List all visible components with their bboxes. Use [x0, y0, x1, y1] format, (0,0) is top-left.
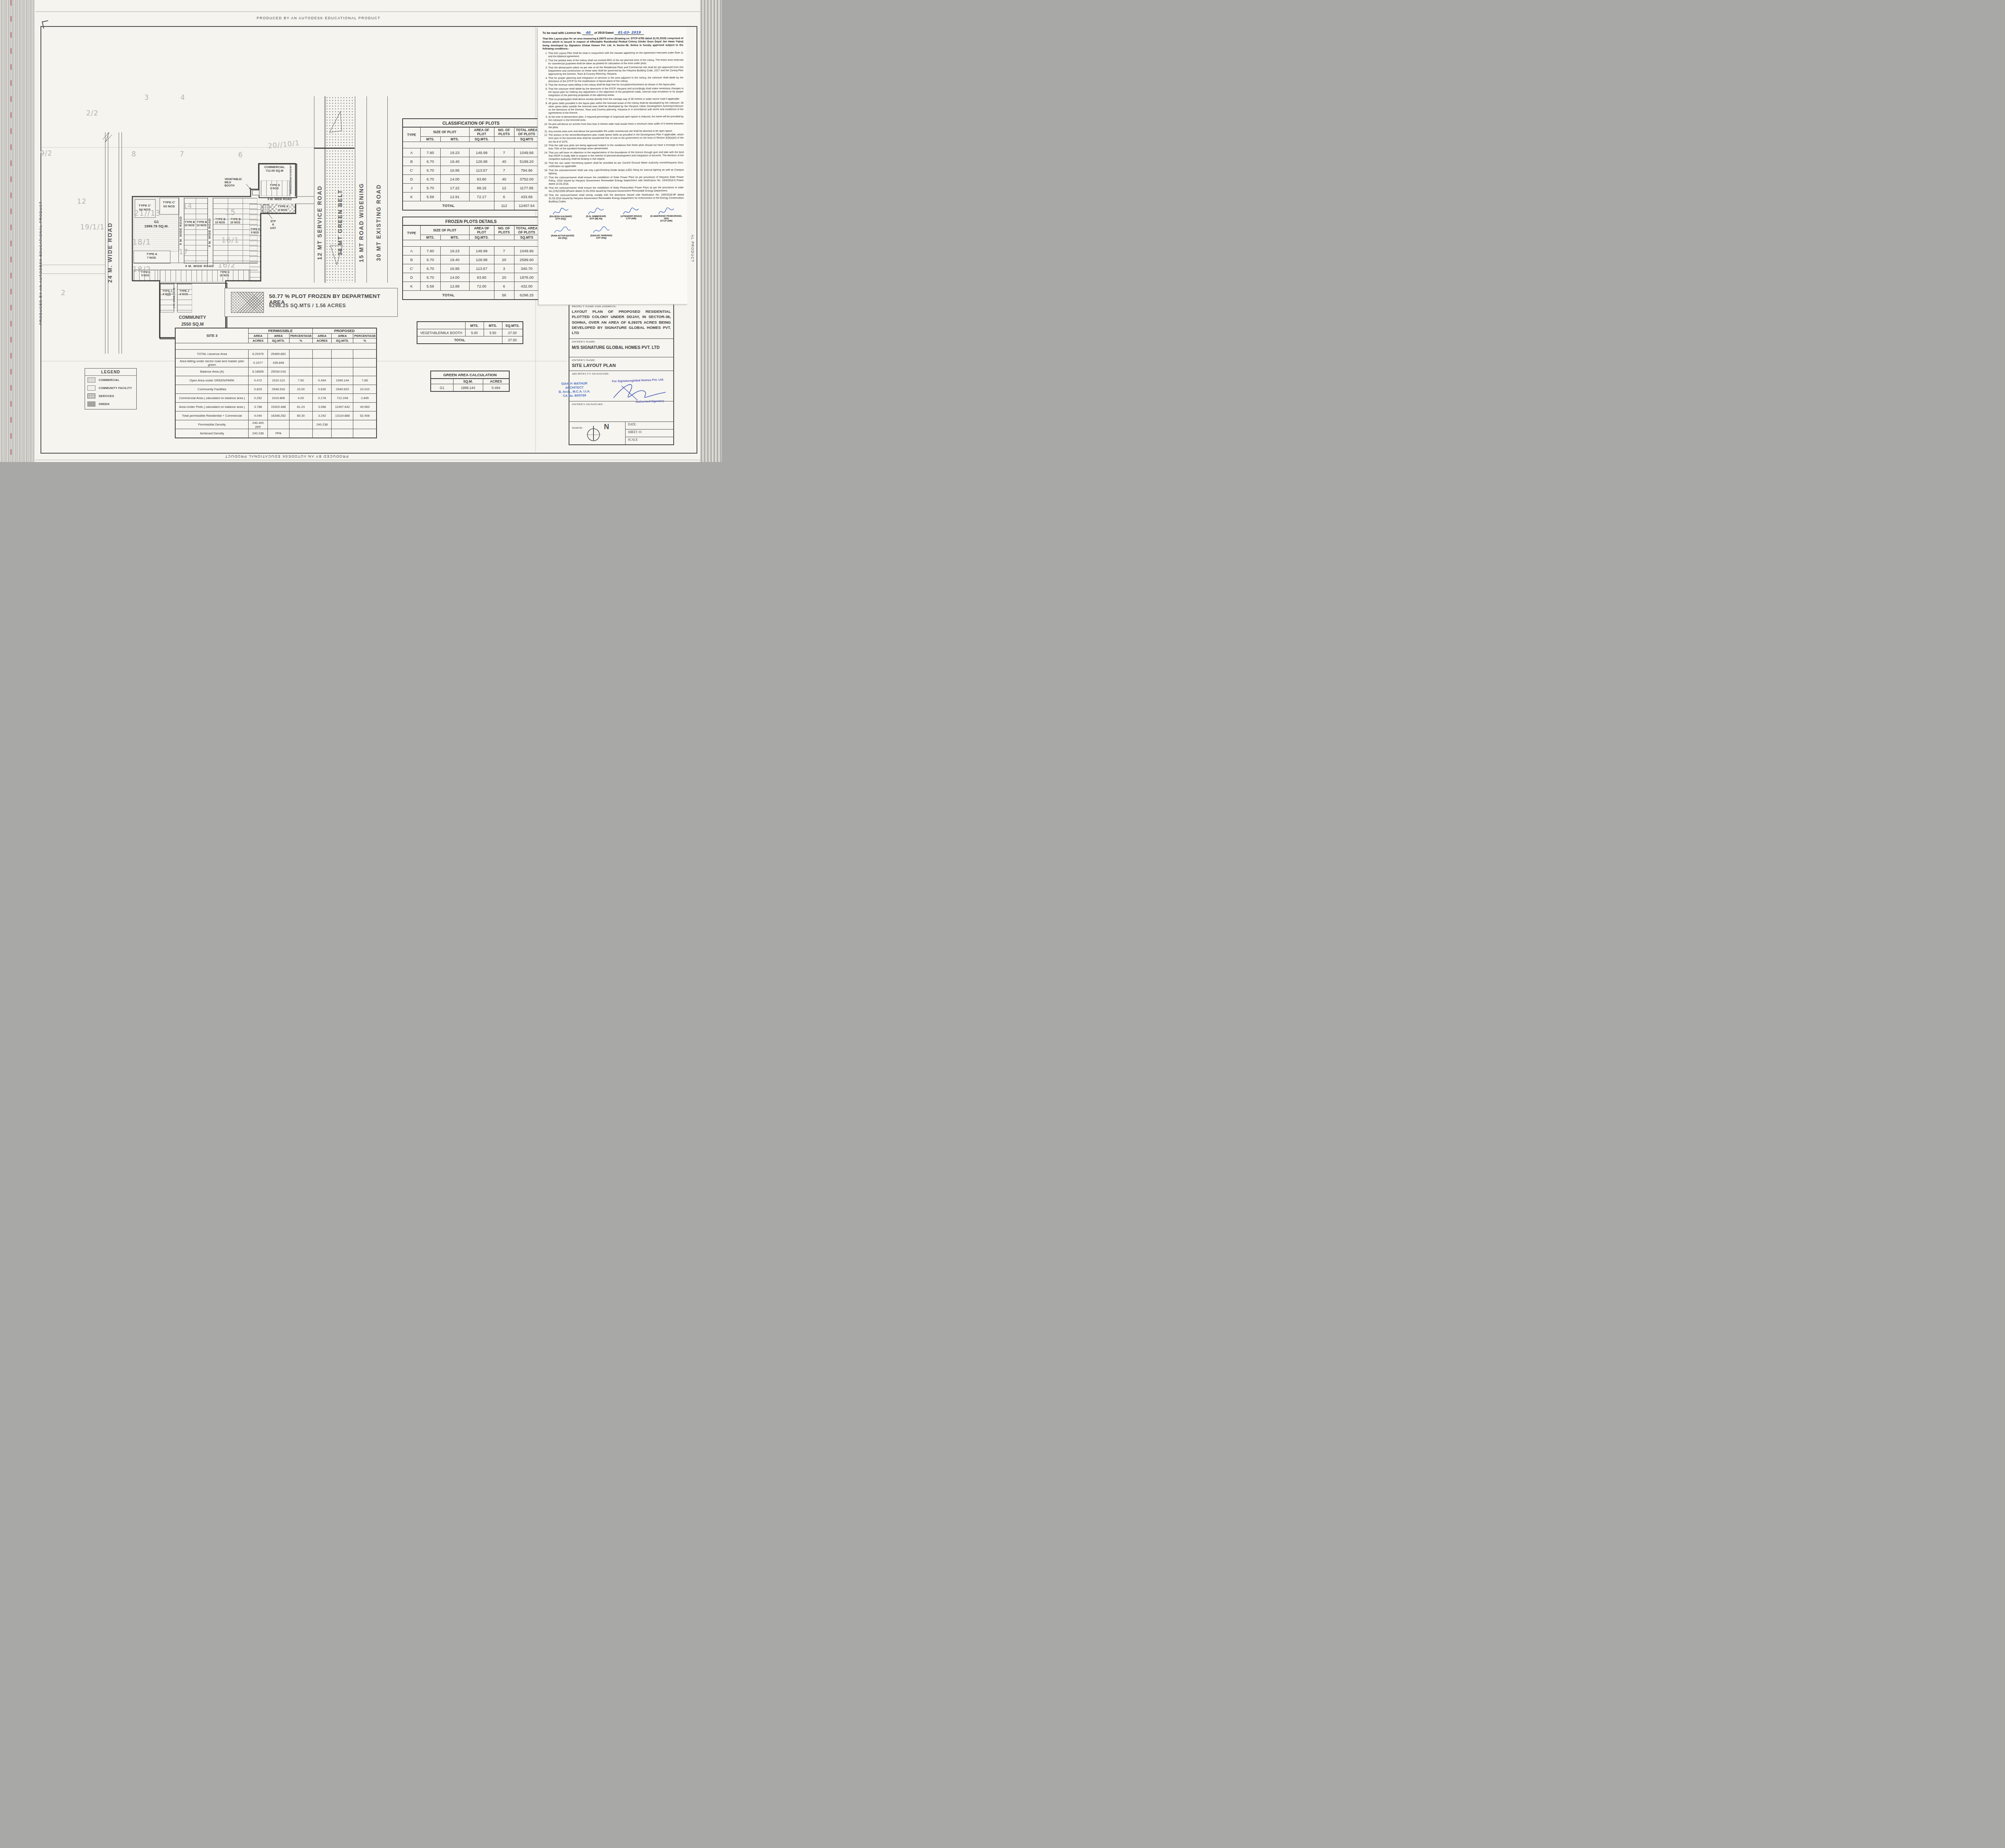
cell-area: 129.98: [469, 255, 494, 264]
frozen-plots-details-table: FROZEN PLOTS DETAILS TYPE SIZE OF PLOT A…: [402, 217, 540, 300]
cell-nos: 20: [494, 255, 514, 264]
legend-swatch: [87, 401, 95, 407]
cell-type: C': [403, 264, 420, 273]
cell-label: G1: [431, 384, 453, 392]
cell-width: 5.00: [465, 329, 484, 336]
cell-length: 12.91: [440, 192, 469, 201]
cell-area: 93.80: [469, 175, 494, 184]
table-row: K 5.59 12.91 72.17 6 433.68: [403, 192, 539, 201]
cell-total-area: 1177.85: [514, 184, 539, 192]
signatory-title: CTP (HR): [614, 217, 649, 220]
cell-acres: 0.494: [483, 384, 509, 392]
licence-condition: That the odd size plots are being approv…: [549, 144, 684, 151]
signature-scribble: [551, 207, 570, 216]
table-title: GREEN AREA CALCULATION: [431, 371, 509, 379]
table-row: A 7.80 19.23 149.99 7 1049.96: [403, 247, 539, 255]
cell-proposed-pct: 49.563: [353, 403, 377, 411]
cell-permissible-sqmts: 435.846: [267, 359, 289, 367]
vegetable-milk-booth-table: MTS. MTS. SQ.MTS. VEGETABLE/MILK BOOTH 5…: [417, 321, 523, 344]
total-label: TOTAL: [403, 291, 494, 300]
cell-label: Permissible Density: [175, 420, 249, 429]
group-header-permissible: PERMISSIBLE: [249, 328, 313, 334]
licence-header-prefix: To be read with Licence No.: [543, 31, 581, 34]
plot-label-type-d16: TYPE D 16 NOS: [209, 271, 241, 277]
cell-type: K: [403, 192, 420, 201]
licence-condition: All green belts provided in the layout p…: [548, 101, 683, 115]
signatory: (K.MAKRAND PANDURANG, IAS) DTCP (HR): [649, 207, 684, 222]
licence-condition: That this Layout Plan shall be read in c…: [548, 51, 683, 58]
signatory-name: (K.MAKRAND PANDURANG, IAS): [649, 215, 684, 220]
licence-condition: Any excess area over and above the permi…: [549, 129, 684, 133]
cell-nos: 6: [494, 282, 514, 291]
table-row: K 5.59 12.88 72.00 6 432.00: [403, 282, 539, 291]
col-header: TYPE: [403, 225, 420, 240]
cell-permissible-sqmts: 1019.806: [267, 394, 289, 403]
cell-proposed-pct: [353, 367, 377, 376]
licence-condition: No plot will derive an access from less …: [549, 122, 684, 129]
sheet-cell: SHEET: 01: [626, 430, 673, 437]
cell-proposed-pct: 2.845: [353, 394, 377, 403]
unit-header: MTS.: [440, 235, 469, 240]
road-label-9m: 9 M. WIDE ROAD: [208, 205, 211, 261]
cell-nos: 40: [494, 157, 514, 166]
cell-proposed-pct: [353, 420, 377, 429]
cell-width: 6.70: [420, 175, 440, 184]
cell-permissible-pct: 10.00: [289, 385, 312, 394]
table-row: VEGETABLE/MILK BOOTH 5.00 5.50 27.50: [417, 329, 523, 336]
table-row: C' 6.70 16.95 113.57 3 340.70: [403, 264, 539, 273]
cell-width: 6.70: [420, 273, 440, 282]
cell-permissible-acres: 240-400 ppa: [249, 420, 268, 429]
cell-proposed-sqmts: [332, 420, 353, 429]
cell-permissible-pct: 65.30: [289, 411, 312, 420]
licence-condition: That the plotted area of the colony shal…: [548, 58, 683, 65]
frozen-plot-note: 50.77 % PLOT FROZEN BY DEPARTMENT AREA 6…: [225, 288, 398, 317]
frozen-note-line2: 6298.25 SQ.MTS / 1.56 ACRES: [269, 303, 346, 308]
cell-permissible-acres: 6.18605: [249, 367, 268, 376]
unit-header: SQ.MTS.: [502, 322, 523, 329]
cell-total-area: 1876.00: [514, 273, 539, 282]
gap-row: [175, 343, 377, 350]
legend-item: GREEN: [87, 401, 134, 407]
cell-length: 19.23: [440, 247, 469, 255]
col-header: AREA: [249, 334, 268, 338]
cell-area: 72.00: [469, 282, 494, 291]
drawing-title-section: OWNER'S NAME: SITE LAYOUT PLAN: [569, 357, 673, 371]
total-nos: 112: [494, 201, 514, 211]
signatory: (JITENDER SIHAG) CTP (HR): [614, 207, 649, 222]
corner-header: SITE 3: [175, 328, 249, 343]
licence-condition: That the colonizer/owner shall ensure th…: [549, 186, 684, 193]
cell-area: 149.99: [469, 148, 494, 157]
frozen-rows: A 7.80 19.23 149.99 7 1049.96 B 6.70 19.…: [403, 247, 539, 291]
cell-length: 12.88: [440, 282, 469, 291]
signature-scribble: [592, 226, 610, 235]
cell-permissible-pct: [289, 420, 312, 429]
cell-type: J: [403, 184, 420, 192]
cell-length: 19.40: [440, 255, 469, 264]
cell-nos: 40: [494, 175, 514, 184]
cell-label: Area falling under sector road and maste…: [175, 359, 249, 367]
cell-permissible-pct: 7.50: [289, 376, 312, 385]
cell-proposed-acres: [312, 367, 332, 376]
cell-width: 5.59: [420, 192, 440, 201]
plot-label-type-d9: TYPE D 9 NOS: [134, 271, 157, 277]
cell-permissible-acres: 0.472: [249, 376, 268, 385]
total-label: TOTAL: [417, 336, 502, 344]
date-cell: DATE:: [626, 422, 673, 430]
plot-label-type-c-04: TYPE C' 04 NOS: [135, 204, 155, 211]
cell-proposed-sqmts: [332, 367, 353, 376]
cell-proposed-acres: [312, 350, 332, 359]
cell-permissible-sqmts: 25034.016: [267, 367, 289, 376]
green-area-g1-label: G1 1999.79 SQ.M.: [136, 220, 176, 229]
scanned-layout-plan-sheet: PRODUCED BY AN AUTODESK EDUCATIONAL PROD…: [0, 0, 722, 462]
col-header: TYPE: [403, 127, 420, 142]
licence-header: To be read with Licence No. 40 of 2019 D…: [543, 30, 683, 34]
cell-proposed-acres: 0.494: [312, 376, 332, 385]
table-row: Total permissible Residential + Commerci…: [175, 411, 377, 420]
cell-proposed-pct: [353, 359, 377, 367]
table-row: Area falling under sector road and maste…: [175, 359, 377, 367]
cell-sqm: 1999.144: [453, 384, 483, 392]
plot-label-type-b: TYPE B 10 NOS: [213, 218, 228, 225]
cell-permissible-sqmts: [267, 420, 289, 429]
cell-width: 7.80: [420, 247, 440, 255]
existing-road-label: 30 MT EXISTING ROAD: [375, 172, 382, 273]
licence-condition: That the rain water harvesting system sh…: [549, 161, 684, 168]
unit-header: ACRES: [249, 338, 268, 343]
booth-label: VEGETABLE/ MILK BOOTH: [225, 178, 247, 187]
cell-total-area: 433.68: [514, 192, 539, 201]
road-break-symbol: [103, 132, 112, 142]
cell-nos: 20: [494, 273, 514, 282]
cell-proposed-sqmts: 13119.888: [332, 411, 353, 420]
legend-title: LEGEND: [85, 369, 136, 376]
total-area: 6298.25: [514, 291, 539, 300]
col-header: ACRES: [483, 379, 509, 384]
signature-scribble: [657, 207, 675, 216]
cell-proposed-pct: 52.408: [353, 411, 377, 420]
signatories-row-2: (RAM AVTAR BASSI) AD (HQ) (SANJAY NARANG…: [543, 226, 621, 239]
unit-header: SQ.MTS.: [267, 338, 289, 343]
site3-area-statement-table: SITE 3 PERMISSIBLE PROPOSED AREA AREA PE…: [175, 328, 377, 438]
signature-scribble: [622, 207, 640, 216]
cell-width: 6.70: [420, 255, 440, 264]
legend-swatch: [87, 385, 95, 391]
cell-permissible-acres: 0.1077: [249, 359, 268, 367]
cell-nos: 7: [494, 166, 514, 175]
cell-type: A: [403, 148, 420, 157]
col-header: AREA OF PLOT: [469, 225, 494, 235]
cell-nos: 12: [494, 184, 514, 192]
signature-scribble: [553, 227, 572, 235]
cell-nos: 3: [494, 264, 514, 273]
cell-width: 6.70: [420, 264, 440, 273]
north-compass-icon: [583, 424, 607, 443]
cell-proposed-sqmts: 12407.642: [332, 403, 353, 411]
legend-label: SERVICES: [99, 395, 114, 397]
plot-label-type-c-03: TYPE C' 03 NOS: [160, 201, 178, 208]
cell-length: 17.22: [440, 184, 469, 192]
cell-total-area: 432.00: [514, 282, 539, 291]
licence-header-mid: of 2019 Dated: [594, 31, 614, 34]
cell-proposed-acres: 3.066: [312, 403, 332, 411]
unit-header: MTS.: [440, 137, 469, 142]
cell-proposed-acres: 3.242: [312, 411, 332, 420]
cell-total-area: 5199.20: [514, 157, 539, 166]
cell-label: Community Facilities: [175, 385, 249, 394]
licence-date-handwritten: 01-03- 2019: [614, 30, 644, 35]
owner-signature-section: OWNER'S SIGNATURE:: [569, 401, 673, 422]
table-row: J 5.70 17.22 98.15 12 1177.85: [403, 184, 539, 192]
cell-type: D: [403, 273, 420, 282]
plot-label-type-d9: TYPE D 9 NOS: [248, 228, 262, 234]
cell-length: 19.23: [440, 148, 469, 157]
cell-permissible-acres: 240.238: [249, 429, 268, 438]
table-row: A 7.80 19.23 149.99 7 1049.96: [403, 148, 539, 157]
signatory: (RAJESH KAUSHIK) DTP (HQ): [543, 207, 578, 223]
cell-permissible-acres: 0.252: [249, 394, 268, 403]
licence-conditions-list: That this Layout Plan shall be read in c…: [543, 51, 684, 203]
cell-label: Total permissible Residential + Commerci…: [175, 411, 249, 420]
cell-type: D: [403, 175, 420, 184]
cell-permissible-pct: 4.00: [289, 394, 312, 403]
frozen-hatch-swatch: [231, 292, 264, 313]
cell-proposed-pct: 7.85: [353, 376, 377, 385]
signatory-title: STP (M) HQ: [578, 217, 614, 220]
cell-proposed-sqmts: 712.246: [332, 394, 353, 403]
table-row: D 6.70 14.00 93.80 40 3752.00: [403, 175, 539, 184]
cell-area: 149.99: [469, 247, 494, 255]
architect-stamp: GIAN P. MATHUR ARCHITECT B. Arch., M.C.A…: [559, 381, 591, 398]
site3-rows: TOTAL Liscence Area 6.29375 25469.862 Ar…: [175, 350, 377, 438]
table-row: Community Facilities 0.629 2546.516 10.0…: [175, 385, 377, 394]
owner-signature-label: OWNER'S SIGNATURE:: [572, 403, 671, 406]
road-label-9m: 9 M. WIDE ROAD: [180, 264, 219, 268]
cell-proposed-acres: [312, 359, 332, 367]
cell-length: 19.40: [440, 157, 469, 166]
road-widening-label: 15 MT ROAD WIDENING: [358, 172, 365, 273]
unit-header: SQ.MTS.: [469, 137, 494, 142]
plot-label-type-a: TYPE A 7 NOS: [136, 252, 168, 259]
col-header: PERCENTAGE: [353, 334, 377, 338]
cell-total-area: 1049.96: [514, 148, 539, 157]
cell-length: 14.00: [440, 273, 469, 282]
table-row: Open Area under GREEN/PARK 0.472 1910.11…: [175, 376, 377, 385]
plot-label-type-j: TYPE J 6 NOS: [177, 290, 191, 296]
green-belt-arrow-up: [330, 111, 342, 132]
unit-header: [494, 137, 514, 142]
cell-proposed-sqmts: 1999.144: [332, 376, 353, 385]
cell-proposed-pct: [353, 429, 377, 438]
legend-label: GREEN: [99, 403, 109, 405]
signatory-title: ATP (HQ): [582, 237, 621, 239]
cell-permissible-pct: [289, 367, 312, 376]
cell-type: K: [403, 282, 420, 291]
licence-conditions-sheet: To be read with Licence No. 40 of 2019 D…: [537, 27, 687, 305]
north-label: NORTH:: [572, 426, 583, 430]
road-label-24m: 24 M. WIDE ROAD: [107, 201, 113, 305]
cell-total-area: 794.96: [514, 166, 539, 175]
plot-label-type-k: TYPE K 6 NOS: [272, 205, 294, 212]
commercial-label: COMMERCIAL 712.00 SQ.M: [259, 165, 290, 172]
total-nos: 56: [494, 291, 514, 300]
total-row: TOTAL 27.50: [417, 336, 523, 344]
col-header: SQ.M.: [453, 379, 483, 384]
cell-permissible-pct: [289, 429, 312, 438]
drawing-title: SITE LAYOUT PLAN: [572, 363, 671, 368]
scanner-band-right: [700, 0, 722, 462]
cell-permissible-acres: 6.29375: [249, 350, 268, 359]
legend-swatch: [87, 377, 95, 383]
licence-condition: That for proper planning and integration…: [548, 76, 683, 83]
cell-width: 7.80: [420, 148, 440, 157]
green-area-calculation-table: GREEN AREA CALCULATION SQ.M. ACRES G1 19…: [430, 371, 510, 392]
classification-of-plots-table: CLASSIFICATION OF PLOTS TYPE SIZE OF PLO…: [402, 118, 540, 211]
cell-area: 113.57: [469, 166, 494, 175]
legend-item: COMMUNITY FACILITY: [87, 385, 134, 391]
cell-total-area: 2599.60: [514, 255, 539, 264]
table-row: D 6.70 14.00 93.80 20 1876.00: [403, 273, 539, 282]
cell-permissible-sqmts: 25469.862: [267, 350, 289, 359]
road-label-9m: 9 M. WIDE ROAD: [179, 203, 182, 259]
community-label: COMMUNITY 2550 SQ.M: [162, 314, 223, 327]
unit-header: [494, 235, 514, 240]
cell-proposed-pct: [353, 350, 377, 359]
cell-total-area: 1049.96: [514, 247, 539, 255]
cell-proposed-acres: [312, 429, 332, 438]
cell-permissible-acres: 3.788: [249, 403, 268, 411]
table-row: G1 1999.144 0.494: [431, 384, 509, 392]
col-header: NO. OF PLOTS: [494, 127, 514, 137]
owner-section: OWNER'S NAME: M/S SIGNATURE GLOBAL HOMES…: [569, 339, 673, 357]
table-row: Permissible Density 240-400 ppa 240.238: [175, 420, 377, 429]
plot-label-type-b: TYPE B 10 NOS: [196, 221, 208, 227]
cell-area: 72.17: [469, 192, 494, 201]
cell-proposed-sqmts: [332, 429, 353, 438]
unit-header: SQ.MTS: [514, 137, 539, 142]
table-row: B 6.70 19.40 129.98 20 2599.60: [403, 255, 539, 264]
unit-header: MTS.: [484, 322, 502, 329]
plot-label-type-b: TYPE B 10 NOS: [228, 218, 243, 225]
cell-permissible-sqmts: PPA: [267, 429, 289, 438]
table-row: B 6.70 19.40 129.98 40 5199.20: [403, 157, 539, 166]
cell-length: 14.00: [440, 175, 469, 184]
cell-type: B: [403, 157, 420, 166]
licence-intro: That this Layout plan for an area measur…: [543, 36, 683, 51]
cell-permissible-acres: 4.040: [249, 411, 268, 420]
title-block: PROJECT NAME AND ADDRESS: LAYOUT PLAN OF…: [569, 303, 674, 445]
cell-area: 27.50: [502, 329, 523, 336]
cell-permissible-sqmts: 15329.468: [267, 403, 289, 411]
licence-condition: That you will have no objection to the r…: [549, 151, 684, 161]
north-date-row: NORTH: N DATE: SHEET: 01 SCALE:: [569, 422, 673, 444]
cell-type: C': [403, 166, 420, 175]
cell-label: Balance Area (A): [175, 367, 249, 376]
owner-label: OWNER'S NAME:: [572, 340, 671, 343]
unit-header: %: [353, 338, 377, 343]
licence-condition: That the colonizer shall abide by the di…: [548, 87, 683, 97]
owner-label-2: OWNER'S NAME:: [572, 359, 671, 362]
cell-proposed-acres: 240.238: [312, 420, 332, 429]
cell-permissible-pct: [289, 350, 312, 359]
legend-item: COMMERCIAL: [87, 377, 134, 383]
cell-width: 5.59: [420, 282, 440, 291]
cell-total-area: 340.70: [514, 264, 539, 273]
licence-condition: That the revenue rasta falling in the co…: [548, 83, 683, 87]
col-header: AREA: [332, 334, 353, 338]
table-row: Achieved Density 240.238 PPA: [175, 429, 377, 438]
plot-label-type-d6: TYPE D 6 NOS: [261, 184, 288, 190]
north-cell: NORTH: N: [569, 422, 626, 444]
licence-condition: That the colonizer/owner shall strictly …: [549, 193, 684, 203]
cell-permissible-acres: 0.629: [249, 385, 268, 394]
scale-cell: SCALE:: [626, 437, 673, 444]
gap-row: [403, 142, 539, 148]
cell-area: 98.15: [469, 184, 494, 192]
licence-number-handwritten: 40: [582, 30, 593, 35]
cell-area: 93.80: [469, 273, 494, 282]
cell-area: 113.57: [469, 264, 494, 273]
scanner-band-left: [0, 0, 34, 462]
table-row: Balance Area (A) 6.18605 25034.016: [175, 367, 377, 376]
north-n: N: [604, 423, 609, 431]
signatory: (D.N. NIMBOKAR) STP (M) HQ: [578, 207, 614, 222]
licence-condition: The portion of the sector/development pl…: [549, 133, 684, 144]
road-label-9m: 9 M. WIDE ROAD: [173, 284, 175, 312]
cell-nos: 7: [494, 247, 514, 255]
legend-label: COMMERCIAL: [99, 379, 119, 381]
cell-type: A: [403, 247, 420, 255]
table-title: FROZEN PLOTS DETAILS: [403, 217, 539, 225]
unit-header: SQ.MTS: [514, 235, 539, 240]
table-title: CLASSIFICATION OF PLOTS: [403, 119, 539, 127]
cell-length: 5.50: [484, 329, 502, 336]
cell-label: VEGETABLE/MILK BOOTH: [417, 329, 465, 336]
cell-permissible-sqmts: 1910.113: [267, 376, 289, 385]
cell-label: Achieved Density: [175, 429, 249, 438]
unit-header: SQ.MTS.: [332, 338, 353, 343]
signatory: (RAM AVTAR BASSI) AD (HQ): [543, 226, 582, 239]
cell-proposed-sqmts: 2549.520: [332, 385, 353, 394]
licence-condition: That the coloniser/owner shall use only …: [549, 168, 684, 175]
architect-signature-label: ARCHITECT'S SIGNATURE:: [572, 372, 671, 375]
table-row: Area Under Plots ( calculated on balance…: [175, 403, 377, 411]
col-header: AREA: [312, 334, 332, 338]
unit-header: MTS.: [420, 235, 440, 240]
project-label: PROJECT NAME AND ADDRESS:: [572, 305, 671, 308]
cell-proposed-sqmts: [332, 359, 353, 367]
cell-area: 129.98: [469, 157, 494, 166]
green-belt-label: 38 MT GREEN BELT: [337, 176, 343, 269]
col-header: SIZE OF PLOT: [420, 225, 469, 235]
licence-condition: That no property/plot shall derive acces…: [548, 97, 683, 101]
licence-condition: That the colonizer/owner shall ensure th…: [549, 175, 684, 186]
col-header: AREA OF PLOT: [469, 127, 494, 137]
cell-width: 6.70: [420, 166, 440, 175]
col-header: TOTAL AREA OF PLOTS: [514, 225, 539, 235]
cell-label: TOTAL Liscence Area: [175, 350, 249, 359]
cell-proposed-pct: 10.010: [353, 385, 377, 394]
cell-label: Open Area under GREEN/PARK: [175, 376, 249, 385]
legend-label: COMMUNITY FACILITY: [99, 387, 132, 389]
plot-label-type-b: TYPE B 10 NOS: [184, 221, 196, 227]
stp-arrowhead: [267, 212, 269, 215]
col-header: TOTAL AREA OF PLOTS: [514, 127, 539, 137]
cell-length: 16.95: [440, 166, 469, 175]
service-road-label: 12 MT SERVICE ROAD: [316, 172, 323, 273]
